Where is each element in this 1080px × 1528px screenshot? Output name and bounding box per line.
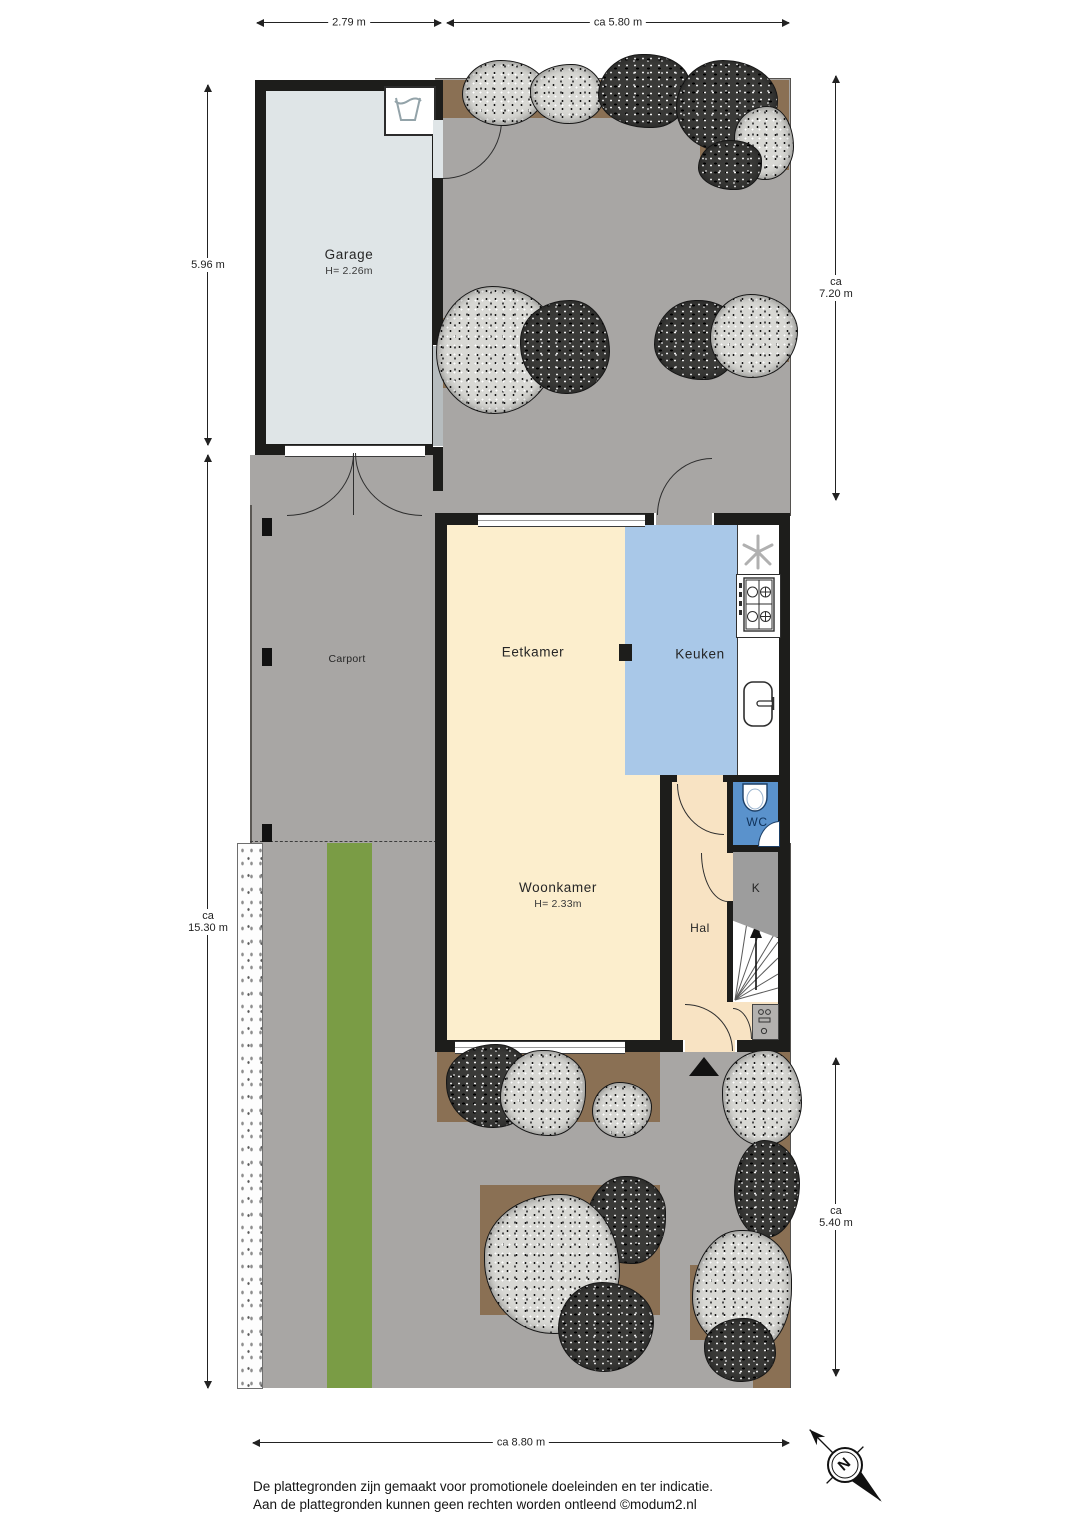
room-label-wc: WC <box>746 815 767 829</box>
dimension-bottom: ca 8.80 m <box>253 1442 789 1443</box>
dimension-top-garage: 2.79 m <box>257 22 441 23</box>
garage-name: Garage <box>325 247 374 262</box>
sink-icon <box>743 680 775 728</box>
carport-post <box>262 824 272 842</box>
disclaimer-line-2: Aan de plattegronden kunnen geen rechten… <box>253 1496 713 1514</box>
shrub <box>530 64 604 124</box>
disclaimer: De plattegronden zijn gemaakt voor promo… <box>253 1478 713 1513</box>
room-label-keuken: Keuken <box>675 647 724 662</box>
shrub <box>520 300 610 394</box>
dimension-top-garden: ca 5.80 m <box>447 22 789 23</box>
eetkamer-window <box>478 514 645 527</box>
side-wall <box>433 455 443 491</box>
shrub <box>722 1050 802 1146</box>
carport-roof-dashed-line <box>250 841 437 842</box>
garage-door-centerline <box>353 453 354 515</box>
toilet-icon <box>742 783 768 816</box>
grass-strip <box>327 843 372 1388</box>
compass-north-icon: N <box>795 1415 895 1515</box>
dimension-left-garage: 5.96 m <box>207 85 208 445</box>
room-label-garage: Garage H= 2.26m <box>325 247 374 277</box>
room-label-kast: K <box>752 881 761 895</box>
shrub <box>698 140 762 190</box>
room-label-carport: Carport <box>328 653 365 665</box>
room-label-woonkamer: Woonkamer H= 2.33m <box>519 880 597 910</box>
garage-garden-door-gap <box>433 120 443 178</box>
washing-machine-icon <box>384 86 436 136</box>
wall-stub <box>619 644 632 661</box>
room-label-hal: Hal <box>690 921 710 935</box>
woonkamer-height: H= 2.33m <box>519 898 597 910</box>
dimension-right-front: ca5.40 m <box>835 1058 836 1376</box>
disclaimer-line-1: De plattegronden zijn gemaakt voor promo… <box>253 1478 713 1496</box>
room-label-eetkamer: Eetkamer <box>502 645 565 660</box>
carport-edge-line <box>250 505 252 843</box>
meter-cupboard <box>752 1004 779 1040</box>
dimension-left-plot: ca15.30 m <box>207 455 208 1388</box>
hedge-strip <box>237 843 263 1389</box>
dimension-right-garden: ca7.20 m <box>835 76 836 500</box>
hal-door-gap <box>677 775 723 782</box>
extractor-fan-icon <box>739 528 777 576</box>
shrub <box>704 1318 776 1382</box>
garage-height: H= 2.26m <box>325 265 374 277</box>
floor-plan: Garage H= 2.26m Carport Eetkamer Keuken … <box>0 0 1080 1528</box>
shrub <box>500 1050 586 1136</box>
woonkamer-name: Woonkamer <box>519 880 597 895</box>
carport-post <box>262 648 272 666</box>
entrance-marker <box>689 1057 719 1076</box>
stove-icon <box>736 574 781 638</box>
carport-post <box>262 518 272 536</box>
